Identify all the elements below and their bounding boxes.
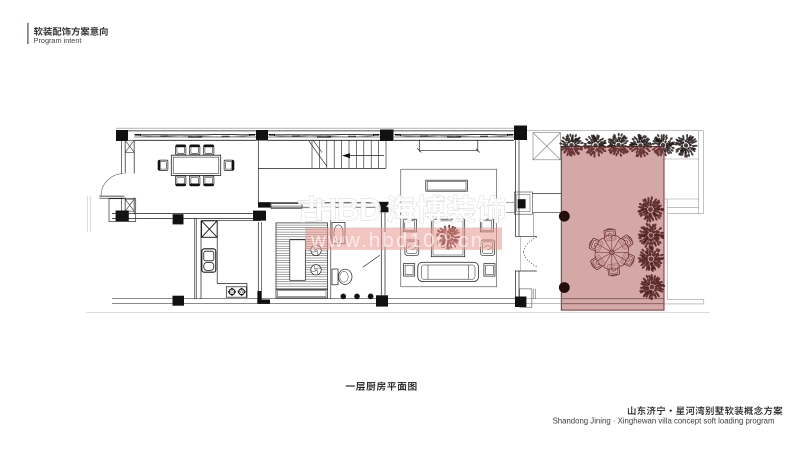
svg-text:Shandong Jining · Xinghewan vi: Shandong Jining · Xinghewan villa concep… xyxy=(553,416,775,425)
svg-text:www.hbd100.cn: www.hbd100.cn xyxy=(310,229,484,252)
svg-text:Program intent: Program intent xyxy=(34,36,82,45)
svg-text:HBD: HBD xyxy=(315,191,382,227)
